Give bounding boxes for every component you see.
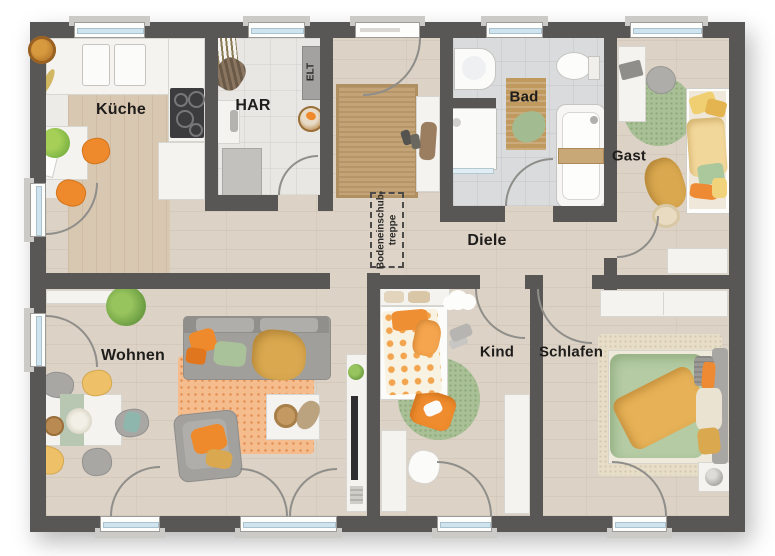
window-glass	[615, 522, 666, 528]
toilet-tank	[588, 56, 600, 80]
bathtub-caddy	[558, 148, 604, 164]
wall-utility-hall	[320, 38, 333, 211]
wall-bath-south-left	[453, 206, 505, 222]
kids-wardrobe	[504, 394, 530, 514]
floor-plan: Küche HAR ELT Bad Gast Diele Wohnen Kind…	[0, 0, 775, 556]
window-glass	[243, 522, 336, 528]
wall-shower-stub	[440, 98, 496, 108]
building-outline	[30, 22, 745, 532]
pillow-cream	[696, 388, 722, 430]
wall-living-north	[30, 273, 330, 289]
room-label-diele: Diele	[467, 232, 506, 250]
kitchen-sink	[82, 44, 110, 86]
window-glass	[36, 186, 42, 236]
bathtub-faucet	[590, 116, 598, 124]
label-attic-hatch: Bodeneinschub- treppe	[376, 191, 399, 269]
label-attic-hatch-line2: treppe	[387, 215, 398, 246]
entry-door-panel	[360, 28, 400, 32]
kitchen-cabinet	[158, 142, 205, 200]
wall-kids-north	[380, 275, 480, 289]
wall-bath-guest	[604, 38, 617, 216]
wall-kitchen-utility	[205, 38, 218, 211]
room-label-kueche: Küche	[96, 101, 146, 119]
palm-plant	[106, 286, 146, 326]
room-label-gast: Gast	[612, 148, 646, 165]
cloud-decor	[448, 290, 468, 310]
sink-bowl	[462, 56, 486, 80]
window-glass	[251, 28, 304, 34]
room-label-bad: Bad	[510, 89, 539, 106]
shower-drain	[452, 118, 461, 127]
cooktop-burner	[188, 91, 205, 108]
window-glass	[36, 316, 42, 366]
bedroom-wardrobe	[600, 290, 728, 317]
toilet	[556, 52, 592, 80]
cooktop-burner	[174, 93, 188, 107]
shower-glass-door	[450, 168, 494, 174]
pillow-orange	[701, 362, 716, 391]
flower-centerpiece	[66, 408, 92, 434]
window-glass	[77, 28, 144, 34]
small-plant	[348, 364, 364, 380]
books	[350, 486, 363, 504]
wood-bowl	[44, 416, 64, 436]
hanging-coats	[419, 121, 438, 160]
tv-screen	[351, 396, 358, 480]
guest-desk	[618, 46, 646, 122]
pillow-small-yellow	[712, 178, 727, 198]
shelf-pillow	[384, 291, 404, 303]
shelf-pillow	[408, 291, 430, 303]
cooktop-burner	[189, 123, 203, 137]
room-label-kind: Kind	[480, 344, 514, 361]
window-glass	[103, 522, 159, 528]
window-glass	[633, 28, 702, 34]
table-lamp	[705, 468, 723, 486]
room-label-elt: ELT	[306, 63, 317, 81]
kitchen-sink-drainer	[114, 44, 146, 86]
room-label-wohnen: Wohnen	[101, 347, 165, 365]
wall-utility-south-left	[218, 195, 278, 211]
mustard-throw	[250, 328, 307, 382]
label-attic-hatch-line1: Bodeneinschub-	[376, 191, 387, 269]
fruit-basket	[28, 36, 56, 64]
wall-bedroom-north	[592, 275, 745, 289]
utility-cabinet	[222, 148, 262, 196]
wardrobe-door-split	[663, 292, 664, 315]
room-label-schlafen: Schlafen	[539, 344, 603, 361]
room-label-har: HAR	[235, 97, 270, 115]
guest-sideboard	[667, 248, 728, 274]
window-glass	[489, 28, 542, 34]
pillow-mustard	[697, 427, 722, 455]
pillow-dark-orange	[185, 347, 207, 366]
wall-living-kids	[367, 273, 380, 516]
kids-desk	[381, 430, 407, 512]
round-tray	[274, 404, 298, 428]
wall-hall-bath	[440, 38, 453, 222]
pillow-green	[213, 340, 247, 367]
window-glass	[440, 522, 491, 528]
